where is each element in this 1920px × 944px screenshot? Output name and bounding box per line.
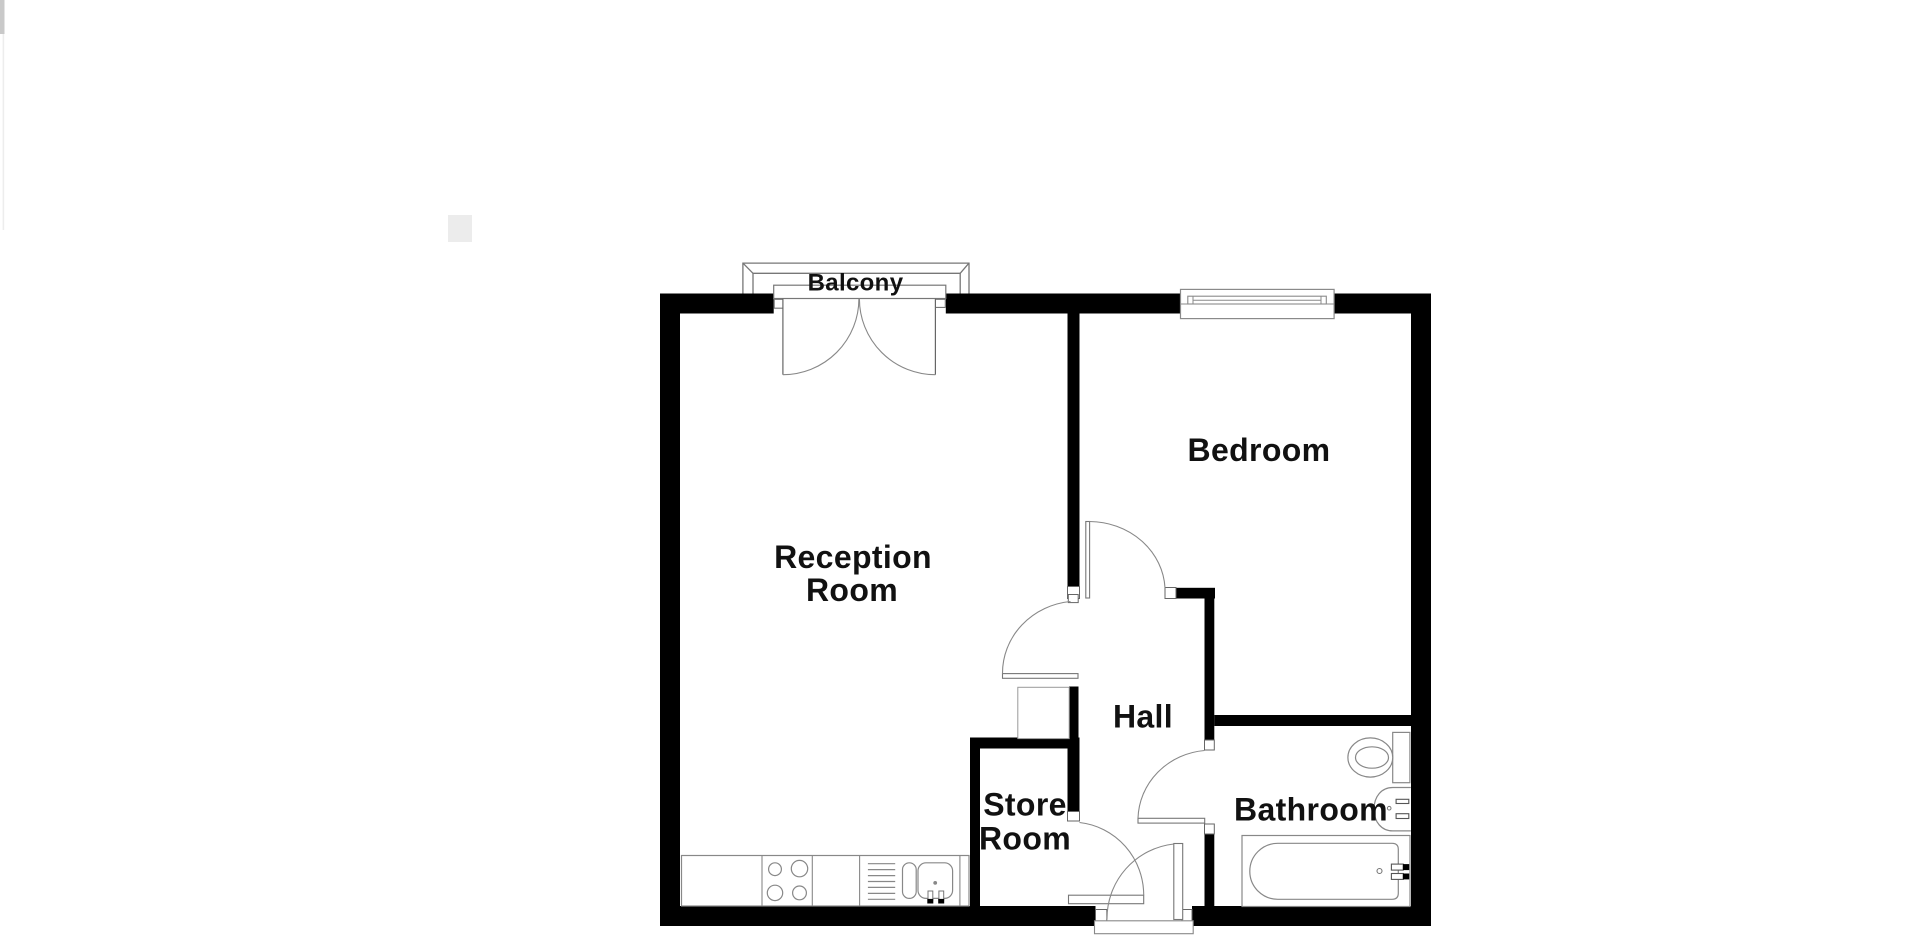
svg-text:Reception: Reception <box>774 539 932 575</box>
svg-text:Bathroom: Bathroom <box>1234 792 1388 828</box>
svg-text:Store: Store <box>983 787 1067 823</box>
svg-text:Room: Room <box>979 821 1071 857</box>
svg-text:Bedroom: Bedroom <box>1188 432 1331 468</box>
svg-text:Balcony: Balcony <box>808 269 904 296</box>
svg-text:Room: Room <box>806 572 898 608</box>
svg-text:Hall: Hall <box>1113 699 1173 735</box>
